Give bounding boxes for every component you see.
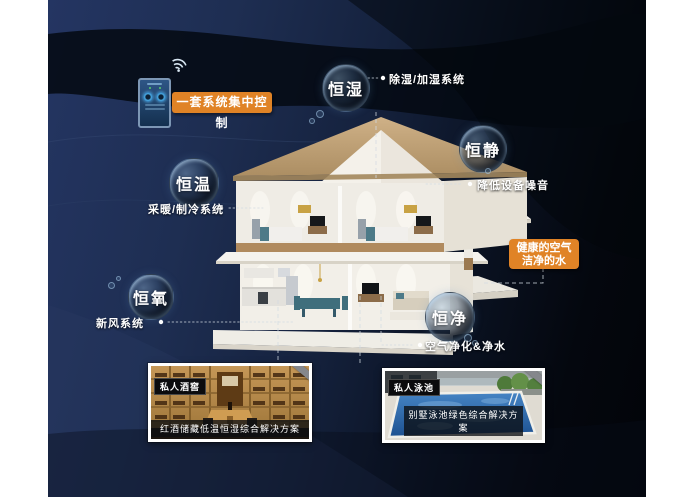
pool-tag: 私人泳池 [388, 379, 440, 396]
note-fresh-air-system: 新风系统 [96, 315, 144, 331]
bubble-label: 恒温 [176, 171, 212, 195]
mini-bubble [116, 276, 121, 281]
panel-title-bar [147, 83, 162, 85]
bubble-label: 恒湿 [328, 76, 364, 100]
bubble-constant-quiet: 恒静 [459, 125, 507, 173]
air-water-badge-line2: 洁净的水 [509, 255, 579, 268]
dial-icon [156, 92, 166, 102]
mini-bubble [108, 282, 115, 289]
pool-caption: 别墅泳池绿色综合解决方案 [404, 406, 523, 436]
mini-bubble [309, 118, 315, 124]
bubble-constant-oxygen: 恒氧 [128, 274, 174, 320]
note-purification-system: 空气净化&净水 [425, 338, 506, 354]
air-water-badge-line1: 健康的空气 [509, 242, 579, 255]
bubble-label: 恒净 [432, 305, 468, 329]
mini-bubble [316, 110, 324, 118]
poster-canvas: 一套系统集中控制 健康的空气 洁净的水 恒湿 恒静 恒温 恒氧 恒净 除湿/加湿… [48, 0, 646, 497]
central-control-badge: 一套系统集中控制 [172, 92, 272, 113]
note-hvac-system: 采暖/制冷系统 [148, 201, 224, 217]
wifi-icon [168, 55, 188, 72]
mini-bubble [485, 168, 491, 174]
panel-indicator-lights [149, 87, 161, 89]
wine-cellar-tag: 私人酒窖 [154, 378, 206, 395]
wine-cellar-caption: 红酒储藏低温恒湿综合解决方案 [151, 420, 309, 437]
bubble-label: 恒静 [465, 137, 501, 161]
panel-readout-row [145, 104, 165, 106]
panel-readout-row [145, 108, 165, 110]
bubble-constant-humidity: 恒湿 [322, 64, 370, 112]
pool-photo: 私人泳池 别墅泳池绿色综合解决方案 [382, 368, 545, 443]
note-humidity-system: 除湿/加湿系统 [389, 71, 465, 87]
wine-cellar-photo: 私人酒窖 红酒储藏低温恒湿综合解决方案 [148, 363, 312, 442]
air-water-badge: 健康的空气 洁净的水 [509, 239, 579, 269]
note-noise-reduction: 降低设备噪音 [477, 177, 549, 193]
panel-dials [143, 92, 166, 102]
dial-icon [143, 92, 153, 102]
smart-control-panel [138, 78, 171, 128]
bubble-label: 恒氧 [133, 285, 169, 309]
